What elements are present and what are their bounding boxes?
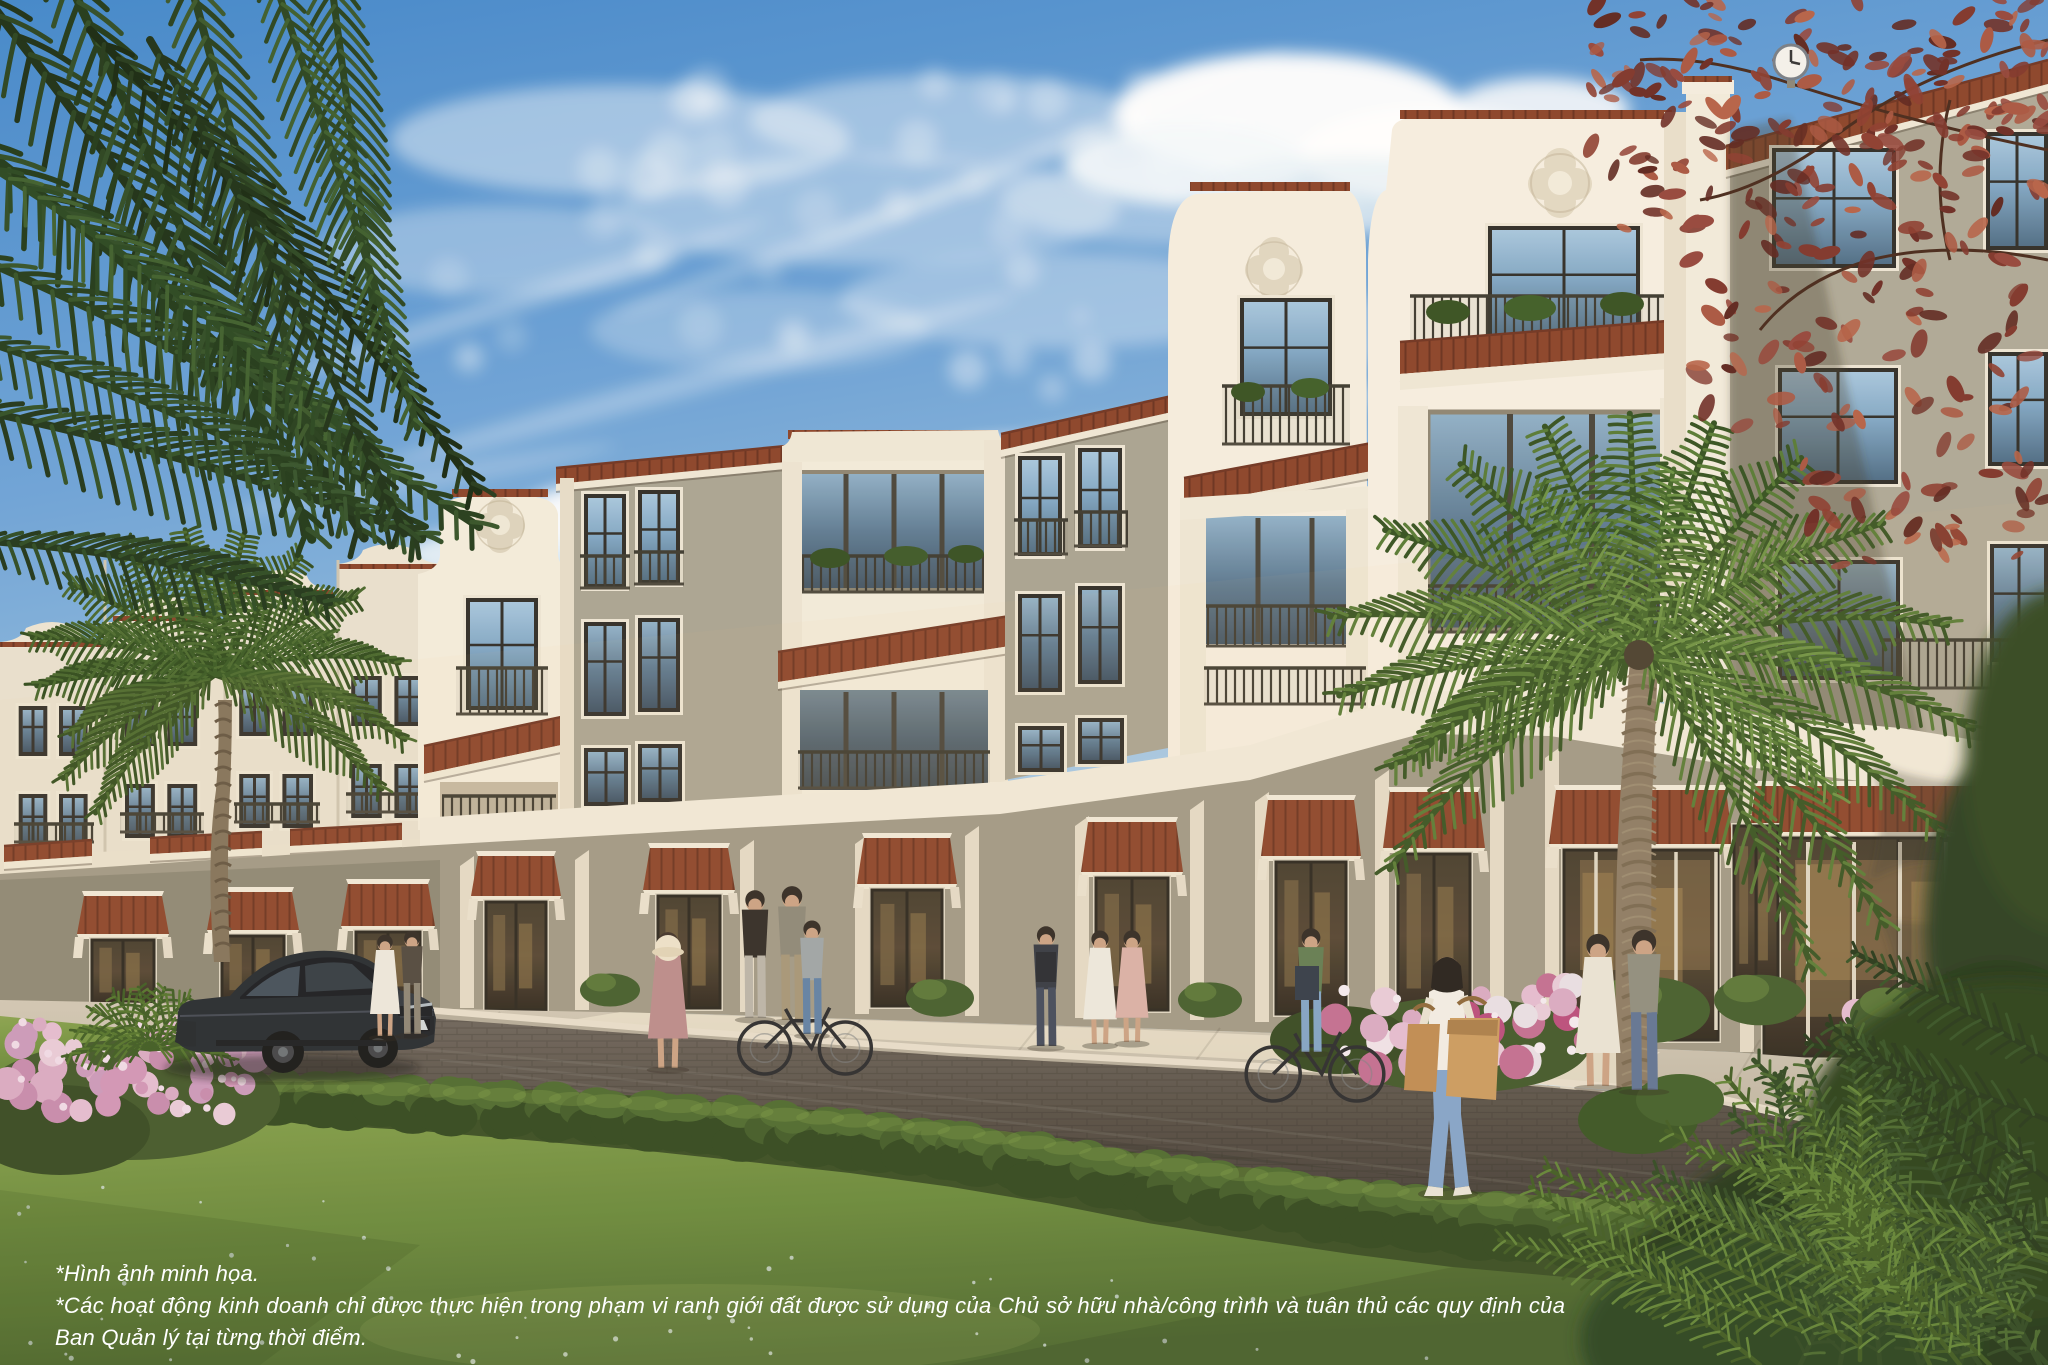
svg-text:Ban Quản lý tại từng thời điểm: Ban Quản lý tại từng thời điểm. [55, 1325, 367, 1350]
svg-text:*Hình ảnh minh họa.: *Hình ảnh minh họa. [55, 1261, 259, 1286]
svg-text:*Các hoạt động kinh doanh chỉ: *Các hoạt động kinh doanh chỉ được thực … [55, 1293, 1565, 1318]
